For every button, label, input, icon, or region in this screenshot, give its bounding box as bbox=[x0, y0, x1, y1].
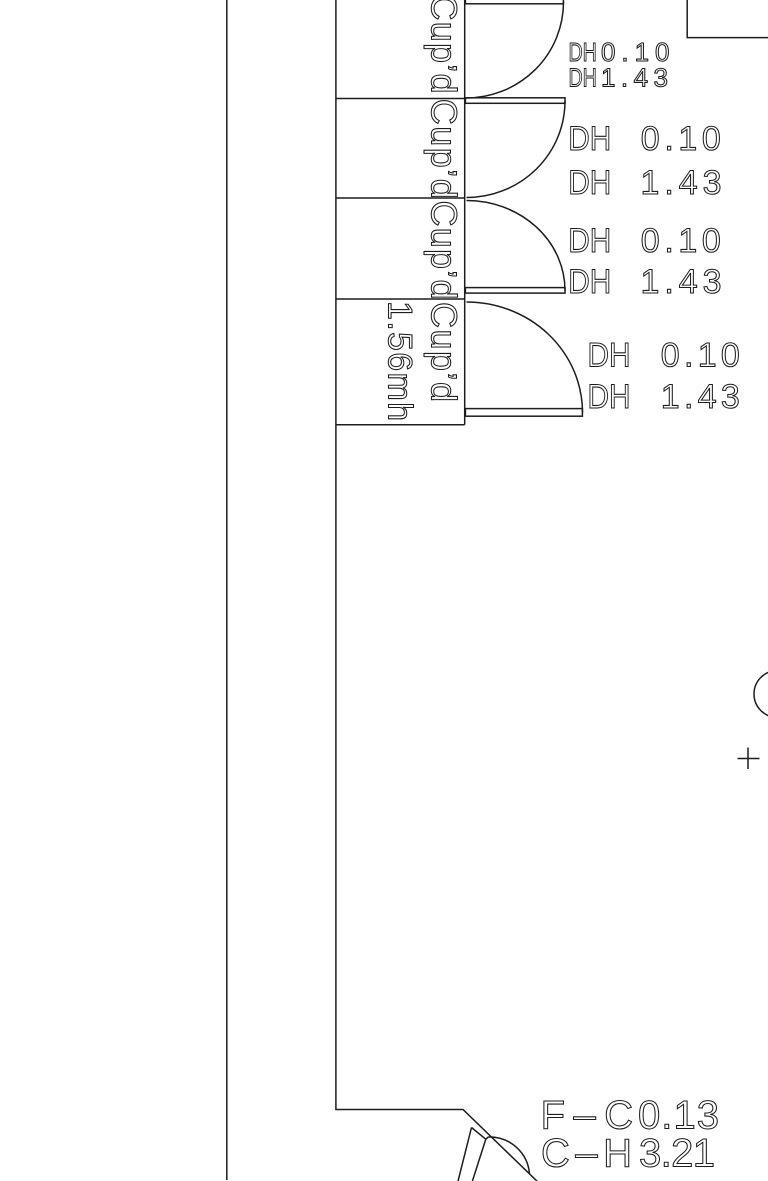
svg-text:DH: DH bbox=[588, 337, 631, 375]
svg-text:1.56mh: 1.56mh bbox=[381, 301, 419, 421]
svg-text:1.43: 1.43 bbox=[661, 378, 740, 416]
svg-text:1.43: 1.43 bbox=[641, 263, 722, 301]
svg-text:Cup’d: Cup’d bbox=[424, 0, 465, 94]
svg-text:Cup’d: Cup’d bbox=[424, 201, 465, 300]
svg-text:0.10: 0.10 bbox=[641, 222, 721, 260]
svg-text:DH: DH bbox=[568, 222, 611, 260]
svg-text:DH: DH bbox=[569, 62, 597, 92]
svg-text:DH: DH bbox=[568, 164, 611, 202]
svg-text:Cup’d: Cup’d bbox=[424, 99, 465, 199]
svg-text:C–H: C–H bbox=[541, 1132, 632, 1176]
svg-text:Cup’d: Cup’d bbox=[424, 302, 465, 402]
svg-text:3.21: 3.21 bbox=[639, 1132, 715, 1176]
svg-text:0.10: 0.10 bbox=[661, 337, 740, 375]
svg-text:1.43: 1.43 bbox=[601, 62, 668, 92]
svg-text:DH: DH bbox=[568, 263, 611, 301]
svg-text:DH: DH bbox=[568, 120, 611, 158]
svg-text:1.43: 1.43 bbox=[641, 164, 722, 202]
svg-text:DH: DH bbox=[588, 378, 631, 416]
svg-text:0.10: 0.10 bbox=[641, 120, 721, 158]
